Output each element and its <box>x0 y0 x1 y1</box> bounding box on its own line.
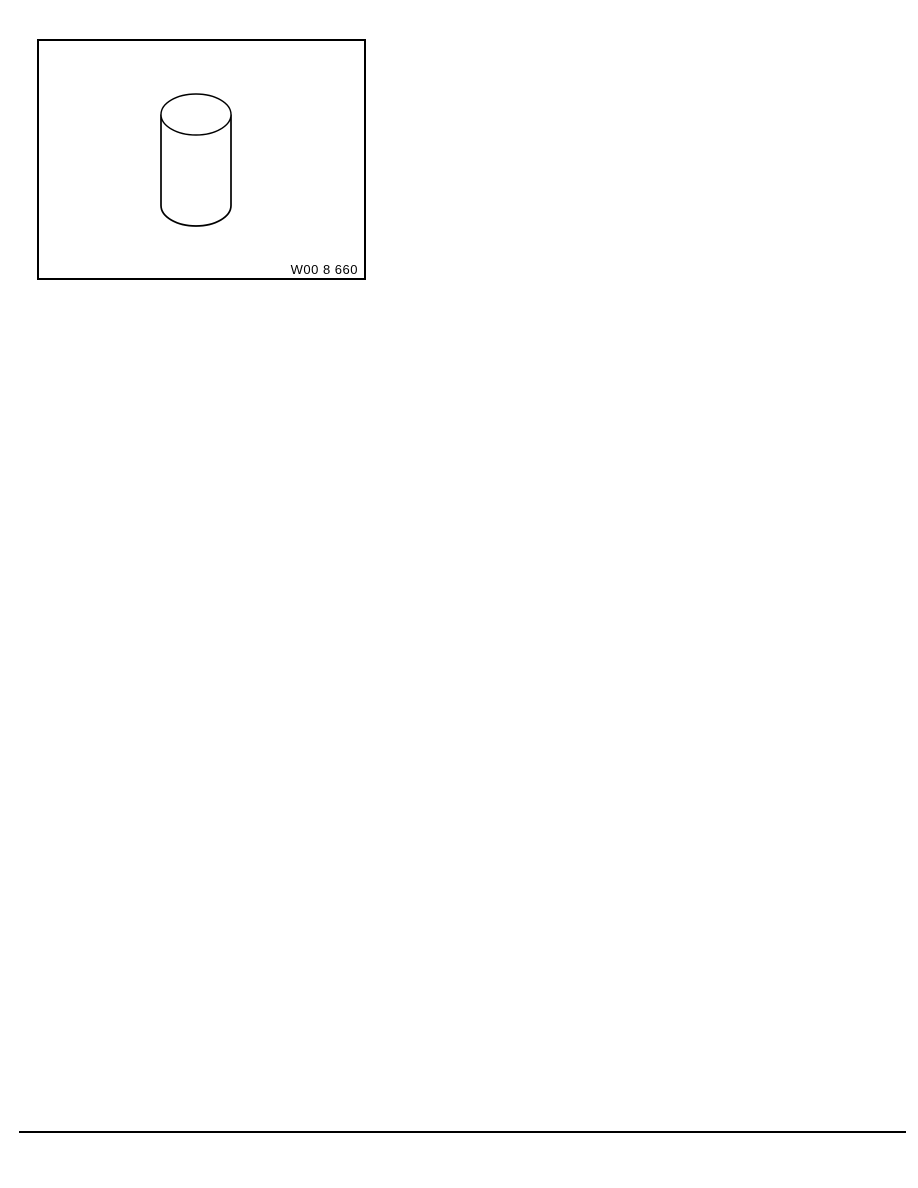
cylinder-top-ellipse <box>161 94 231 135</box>
footer-rule <box>19 1131 906 1133</box>
figure-label: W00 8 660 <box>291 263 358 277</box>
cylinder-illustration <box>39 41 364 278</box>
figure-frame: W00 8 660 <box>37 39 366 280</box>
page: W00 8 660 <box>0 0 918 1188</box>
